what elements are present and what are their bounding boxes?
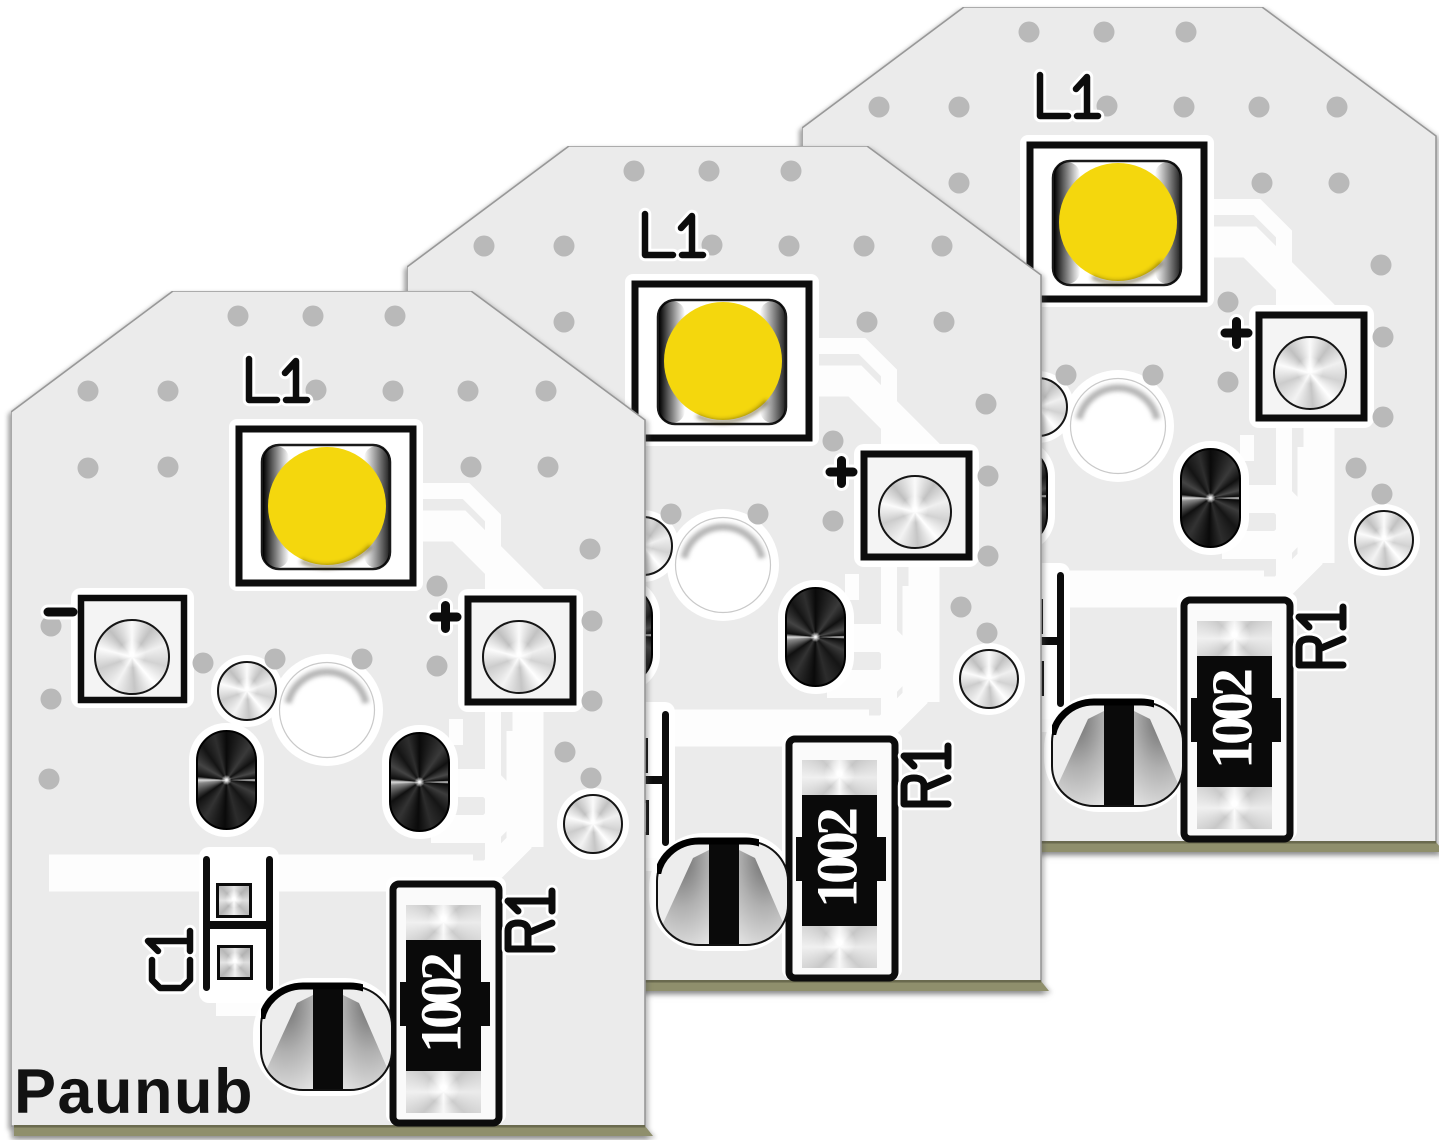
svg-text:Paunub: Paunub	[14, 1057, 254, 1127]
svg-text:1002: 1002	[409, 954, 474, 1053]
svg-text:1002: 1002	[1200, 670, 1265, 769]
svg-text:1002: 1002	[805, 809, 870, 908]
